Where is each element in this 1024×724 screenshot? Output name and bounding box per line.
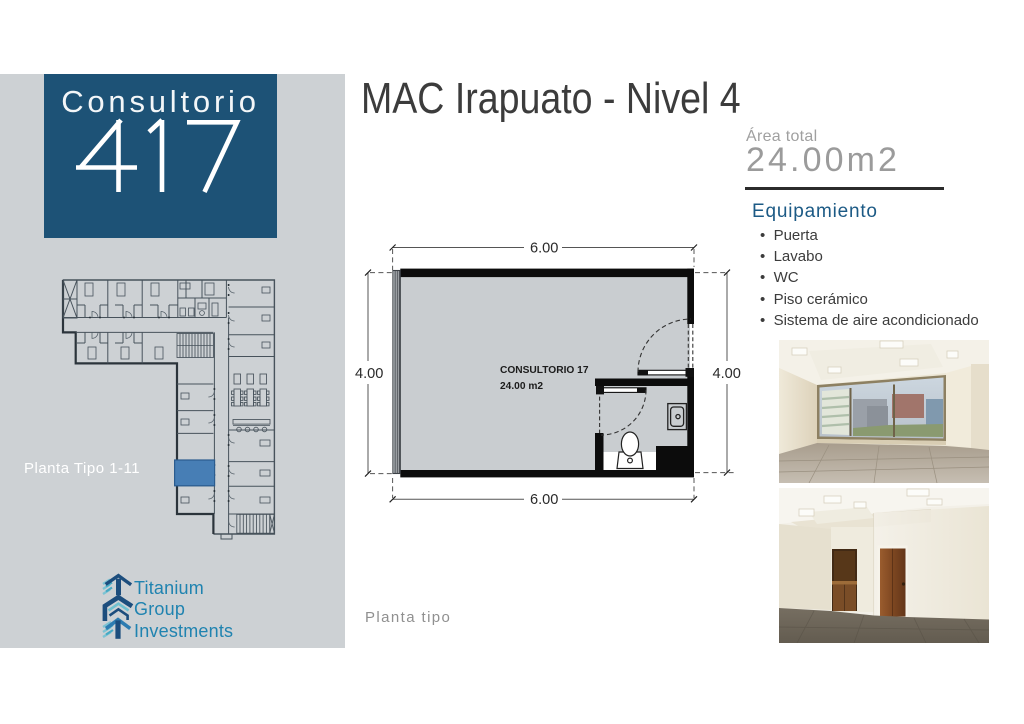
svg-text:CONSULTORIO 17: CONSULTORIO 17 [500, 365, 589, 376]
svg-text:4.00: 4.00 [713, 366, 741, 382]
svg-text:4.00: 4.00 [355, 366, 383, 382]
svg-text:6.00: 6.00 [530, 240, 558, 256]
svg-text:24.00 m2: 24.00 m2 [500, 381, 543, 392]
svg-text:6.00: 6.00 [530, 492, 558, 508]
